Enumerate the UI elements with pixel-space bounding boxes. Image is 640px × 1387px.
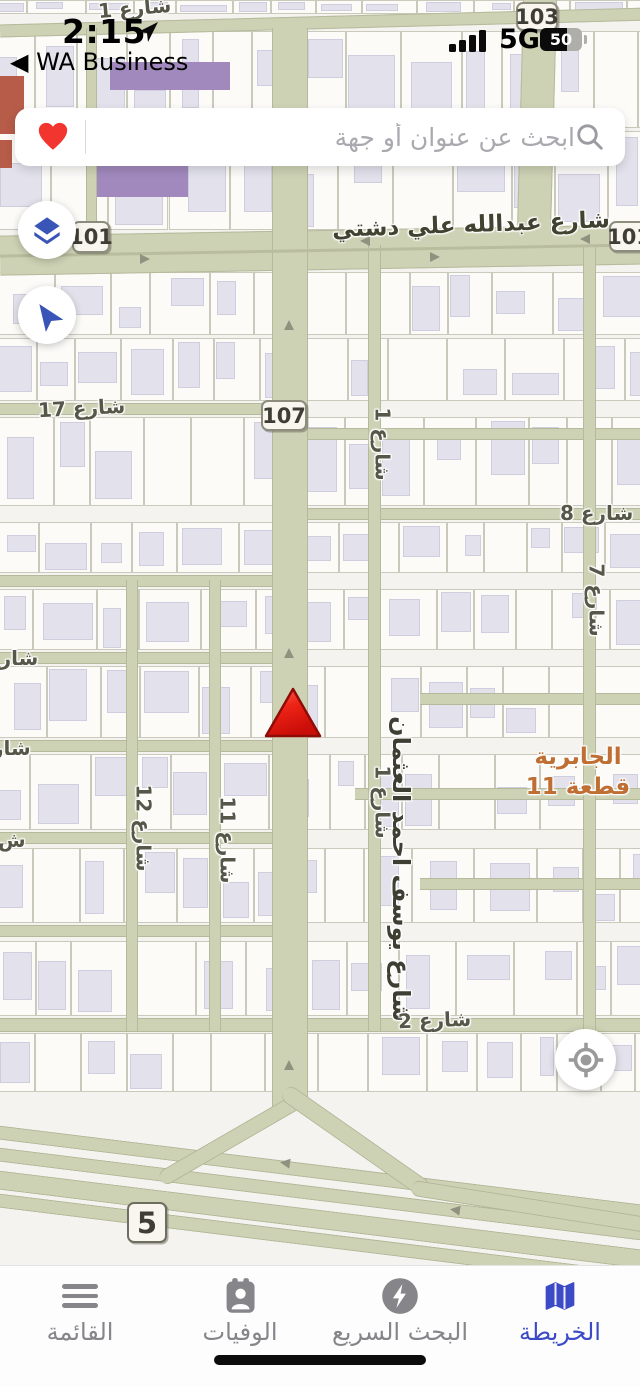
map-building <box>463 369 497 396</box>
road-arrow <box>284 320 294 330</box>
street-label-yousef-ahmad-alothman: شارع يوسف احمد العثمان <box>387 716 415 1022</box>
tab-menu[interactable]: القائمة <box>0 1266 160 1387</box>
map-building <box>40 362 67 386</box>
map-building <box>178 342 200 388</box>
map-building <box>217 281 236 315</box>
map-canvas[interactable]: شارع 1 شارع عبدالله علي دشتي شارع 17 شار… <box>0 0 640 1265</box>
map-building <box>496 291 525 314</box>
cellular-signal-icon <box>449 30 491 52</box>
map-building <box>512 373 559 396</box>
map-plot <box>318 1033 368 1092</box>
battery-cap <box>584 35 587 44</box>
street-label-edge-3: ش <box>0 828 26 852</box>
menu-hamburger-icon <box>62 1276 98 1316</box>
map-plot <box>144 417 190 506</box>
map-building <box>139 532 165 566</box>
road-arrow <box>140 254 150 264</box>
map-road <box>583 245 596 1031</box>
map-building <box>0 865 23 908</box>
network-type-label: 5G <box>499 24 540 55</box>
map-building <box>3 952 33 1000</box>
street-label-12: شارع 12 <box>132 784 156 871</box>
locate-target-icon <box>568 1042 604 1078</box>
map-building <box>49 669 87 721</box>
map-building <box>95 757 128 797</box>
map-building <box>403 526 440 557</box>
map-building <box>441 592 471 632</box>
map-plot <box>325 666 374 738</box>
map-building <box>173 772 208 815</box>
map-building <box>481 595 509 633</box>
map-building <box>506 708 535 732</box>
map-plot <box>133 941 196 1016</box>
map-road <box>420 693 640 705</box>
route-badge-107: 107 <box>261 400 307 431</box>
map-building <box>45 543 86 570</box>
map-plot <box>484 522 526 573</box>
street-label-11: شارع 11 <box>216 796 240 883</box>
back-to-app-button[interactable]: ◀ WA Business <box>10 48 188 76</box>
map-building <box>389 599 420 635</box>
street-label-17: شارع 17 <box>37 394 125 423</box>
map-road <box>0 652 286 664</box>
map-road <box>420 878 640 890</box>
navigation-arrow-icon <box>25 293 70 338</box>
favorites-heart-button[interactable] <box>35 120 71 154</box>
search-input[interactable] <box>96 123 575 152</box>
map-plot <box>388 338 447 401</box>
map-building <box>88 1041 115 1074</box>
status-time: 2:15 <box>62 12 146 51</box>
area-label-line1: الجابرية <box>520 742 636 772</box>
route-badge-101-left: 101 <box>72 221 110 253</box>
map-building <box>412 286 440 331</box>
map-building <box>616 600 640 645</box>
tab-bar: القائمة الوفيات البحث السريع <box>0 1265 640 1387</box>
map-building <box>223 882 250 917</box>
map-building <box>0 790 21 820</box>
map-building-purple <box>93 163 188 197</box>
map-building <box>38 961 66 1011</box>
map-building <box>391 678 418 712</box>
map-building <box>617 436 640 484</box>
map-plot <box>325 848 364 923</box>
map-building <box>467 955 510 981</box>
map-plot <box>302 338 348 401</box>
tab-menu-label: القائمة <box>47 1318 114 1346</box>
map-building <box>103 608 121 648</box>
tab-quick-search-label: البحث السريع <box>332 1318 468 1346</box>
tab-map-label: الخريطة <box>519 1318 601 1346</box>
map-plot <box>211 1033 265 1092</box>
map-building <box>0 346 32 392</box>
map-building-red <box>0 140 12 168</box>
map-building <box>617 946 640 985</box>
map-building <box>131 349 163 396</box>
map-building <box>43 603 93 640</box>
map-icon <box>542 1276 578 1316</box>
layers-button[interactable] <box>18 201 76 259</box>
locate-button[interactable] <box>555 1029 616 1090</box>
map-building <box>312 960 341 1010</box>
tab-map[interactable]: الخريطة <box>480 1266 640 1387</box>
status-bar: 2:15 ◀ WA Business 5G 50 <box>0 0 640 80</box>
street-label-1-lower: شارع 1 <box>371 765 395 838</box>
map-road <box>272 28 308 1108</box>
quick-search-bolt-icon <box>381 1276 419 1316</box>
map-building <box>540 1037 555 1076</box>
map-building <box>14 683 41 730</box>
route-badge-5: 5 <box>127 1202 167 1243</box>
tab-quick-search[interactable]: البحث السريع <box>320 1266 480 1387</box>
battery-icon: 50 <box>540 28 582 51</box>
map-building <box>78 970 112 1011</box>
road-arrow <box>449 1204 460 1215</box>
map-building <box>85 861 104 915</box>
map-building <box>4 596 27 629</box>
layers-icon <box>31 214 63 246</box>
location-services-icon <box>136 20 160 44</box>
map-building <box>450 275 470 317</box>
map-building <box>558 298 585 331</box>
road-arrow <box>279 1157 290 1168</box>
map-building <box>95 451 131 500</box>
home-indicator[interactable] <box>214 1355 426 1365</box>
street-label-1-mid: شارع 1 <box>371 407 395 480</box>
map-road <box>0 1018 640 1032</box>
map-building <box>531 528 550 548</box>
road-arrow <box>430 252 440 262</box>
map-building <box>38 784 79 824</box>
area-label-jabriya: الجابرية قطعة 11 <box>520 742 636 802</box>
tab-obituaries-label: الوفيات <box>203 1318 278 1346</box>
map-plot <box>635 1033 640 1092</box>
map-plot <box>35 1033 81 1092</box>
map-building <box>101 543 122 563</box>
map-plot <box>33 848 80 923</box>
map-building <box>348 597 370 620</box>
map-building <box>142 757 168 787</box>
map-building <box>130 1054 162 1090</box>
map-plot <box>173 1033 212 1092</box>
map-road <box>0 575 286 587</box>
street-label-edge-2: شار <box>0 736 31 760</box>
map-building <box>171 278 204 306</box>
map-building <box>7 535 36 552</box>
map-building <box>603 276 640 317</box>
map-building <box>442 1041 467 1073</box>
search-submit[interactable] <box>575 122 605 152</box>
map-building <box>183 858 208 908</box>
map-road <box>0 925 286 937</box>
map-marker-triangle[interactable] <box>263 686 323 744</box>
tab-obituaries[interactable]: الوفيات <box>160 1266 320 1387</box>
street-label-8: شارع 8 <box>560 501 633 525</box>
map-building <box>487 1042 513 1078</box>
map-plot <box>191 417 245 506</box>
map-building <box>224 763 267 795</box>
map-building <box>119 307 141 328</box>
search-icon <box>575 122 605 152</box>
map-building <box>0 163 42 207</box>
map-building <box>144 671 189 713</box>
area-label-line2: قطعة 11 <box>520 772 636 802</box>
map-building <box>216 342 235 379</box>
map-road <box>0 740 286 752</box>
road-arrow <box>580 234 590 244</box>
map-building <box>610 534 640 568</box>
map-building <box>351 360 368 396</box>
compass-button[interactable] <box>18 286 76 344</box>
street-label-edge-1: شارع <box>0 646 38 670</box>
contact-badge-icon <box>222 1276 258 1316</box>
road-arrow <box>284 1060 294 1070</box>
map-plot <box>516 589 552 650</box>
search-bar <box>15 108 625 166</box>
map-building <box>465 535 480 556</box>
map-building <box>146 602 188 643</box>
map-road <box>368 245 381 1031</box>
search-divider <box>85 120 86 154</box>
map-building <box>60 422 85 467</box>
battery-percent: 50 <box>540 28 582 51</box>
heart-icon <box>35 120 71 154</box>
street-label-7: شارع 7 <box>585 563 609 636</box>
route-badge-101-right: 101 <box>609 221 640 252</box>
map-building <box>630 352 640 396</box>
map-building <box>545 951 572 980</box>
map-building <box>338 761 354 786</box>
street-label-2: شارع 2 <box>398 1007 472 1034</box>
map-building <box>382 1037 420 1075</box>
road-arrow <box>284 648 294 658</box>
map-building <box>182 528 222 565</box>
map-building <box>7 437 35 499</box>
map-building <box>78 352 116 382</box>
map-building <box>0 1042 30 1083</box>
